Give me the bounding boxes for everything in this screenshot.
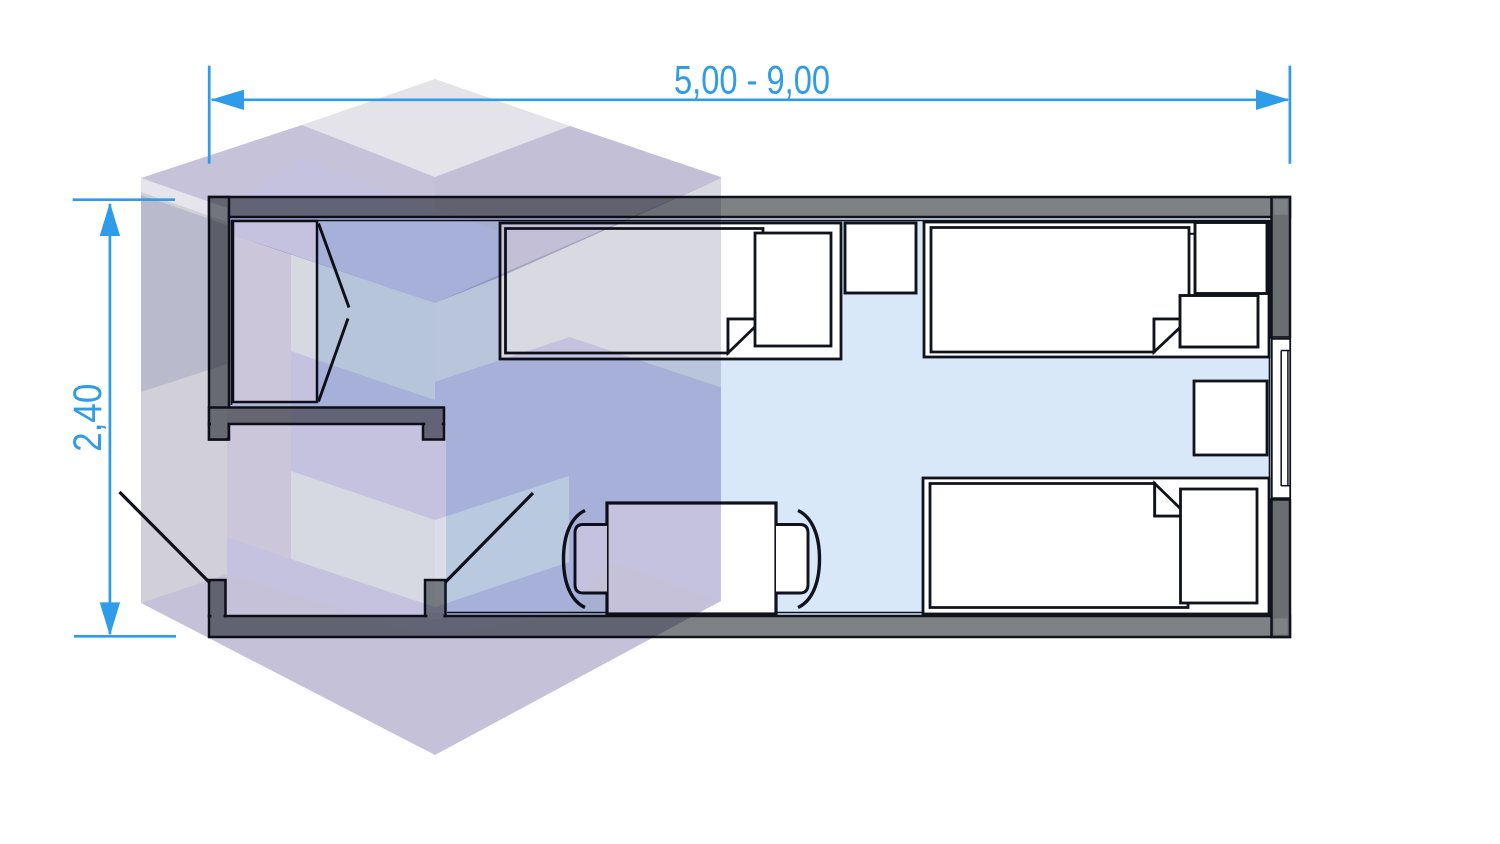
svg-text:2,40: 2,40: [66, 384, 110, 452]
svg-text:5,00 - 9,00: 5,00 - 9,00: [674, 59, 830, 103]
